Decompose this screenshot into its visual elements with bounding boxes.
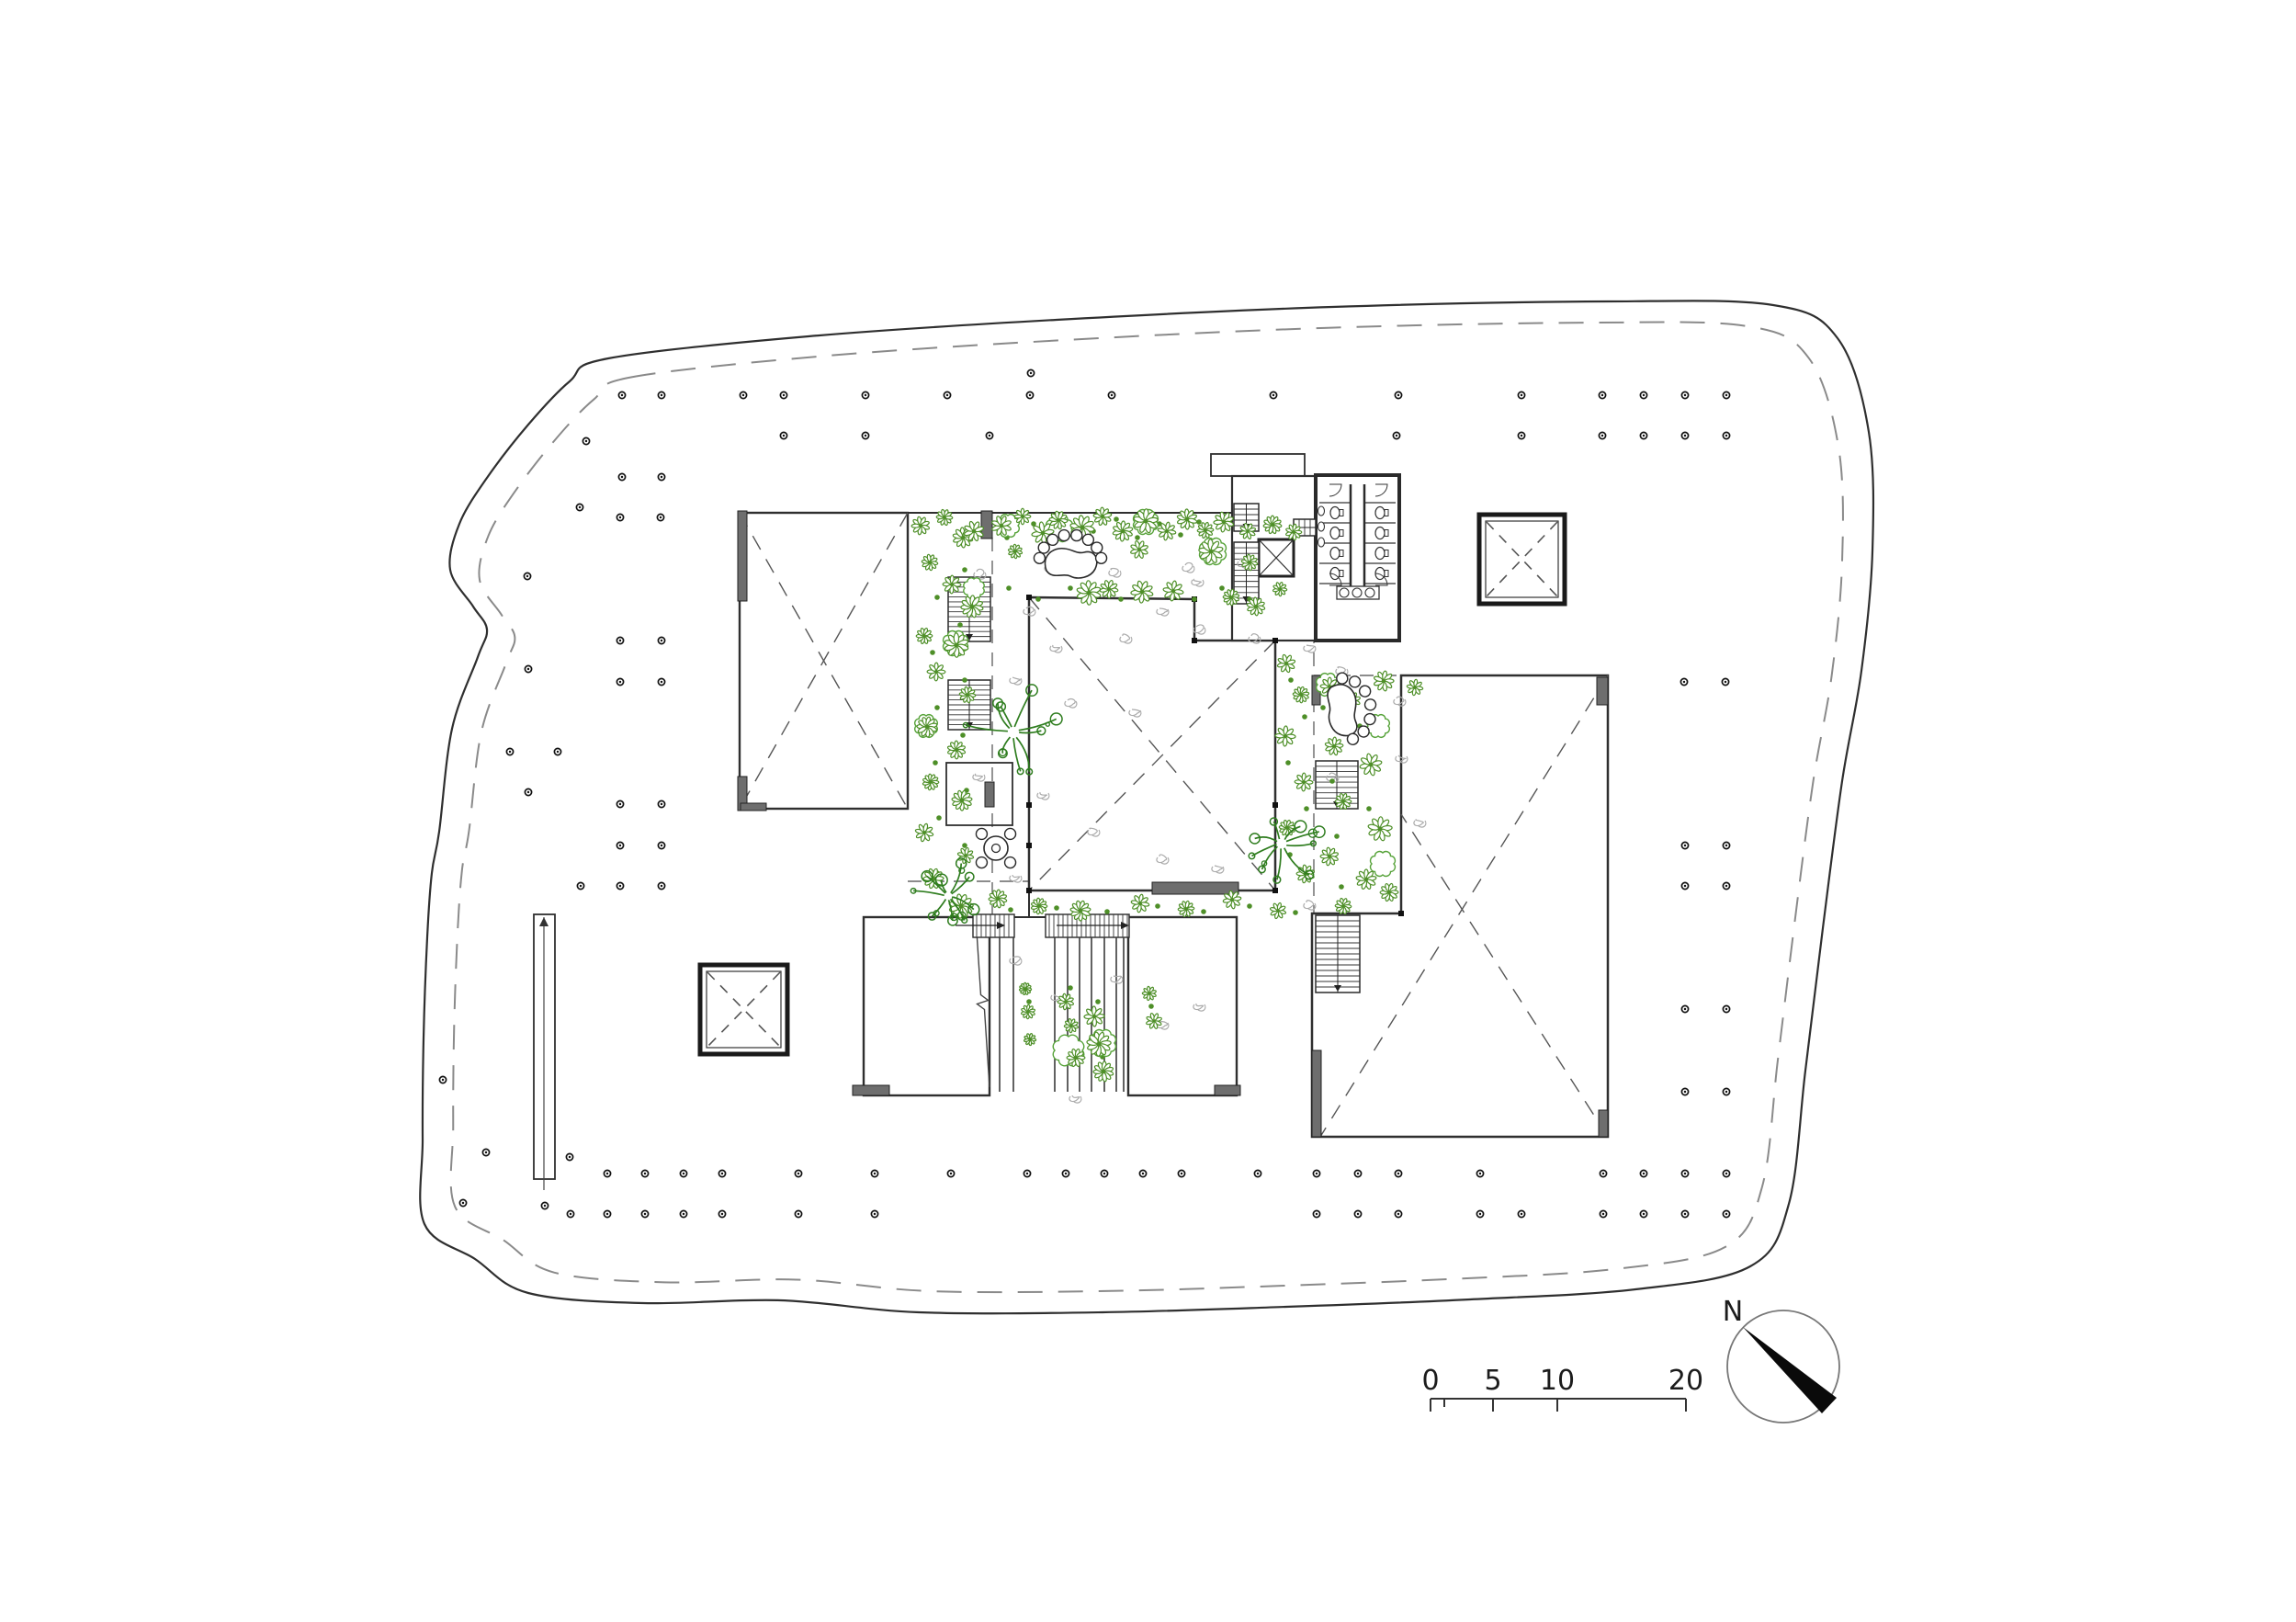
column-dot bbox=[604, 1170, 610, 1176]
column-dot-center bbox=[644, 1213, 646, 1215]
column-dot-center bbox=[865, 435, 866, 437]
leaf-scribble bbox=[1182, 562, 1194, 573]
column-dot bbox=[577, 882, 583, 889]
flower-petal bbox=[1024, 982, 1026, 988]
column-dot-center bbox=[557, 751, 559, 753]
column-dot-center bbox=[661, 640, 662, 641]
column-dot-center bbox=[865, 394, 866, 396]
column-dot-center bbox=[721, 1173, 723, 1174]
flower-petal bbox=[1120, 532, 1125, 541]
corner-marker bbox=[1026, 843, 1032, 848]
column-dot bbox=[1723, 1210, 1729, 1217]
column-dot-center bbox=[485, 1151, 487, 1153]
plant-dot bbox=[930, 650, 935, 655]
north-label: N bbox=[1723, 1296, 1743, 1328]
column-dot bbox=[1640, 1170, 1646, 1176]
column-dot bbox=[616, 800, 623, 807]
leaf-scribble bbox=[1109, 569, 1121, 578]
column-dot-center bbox=[621, 476, 623, 478]
column-dot bbox=[1599, 391, 1605, 398]
leaf-scribble bbox=[1304, 645, 1316, 652]
wc-fixture bbox=[1330, 527, 1340, 539]
column-dot-center bbox=[660, 516, 662, 518]
wc-fixture bbox=[1375, 527, 1385, 539]
column-dot-center bbox=[989, 435, 990, 437]
column-dot bbox=[1723, 432, 1729, 438]
plant-dot bbox=[1178, 532, 1183, 538]
urinal-fixture bbox=[1318, 538, 1325, 547]
flower-plant bbox=[1099, 578, 1120, 599]
column-dot-center bbox=[462, 1202, 464, 1204]
column-dot-center bbox=[1029, 394, 1031, 396]
column-dot-center bbox=[783, 435, 785, 437]
column-dot-center bbox=[570, 1213, 571, 1215]
flower-petal bbox=[945, 516, 953, 519]
plant-dot bbox=[1366, 806, 1372, 811]
column-dot bbox=[680, 1170, 686, 1176]
column-dot bbox=[1518, 1210, 1524, 1217]
column-dot-center bbox=[619, 885, 621, 887]
flower-plant bbox=[1377, 880, 1400, 903]
column-dot bbox=[658, 842, 664, 848]
column-dot-center bbox=[874, 1173, 876, 1174]
column-dot bbox=[1254, 1170, 1261, 1176]
flower-plant bbox=[1022, 1031, 1038, 1048]
leaf-scribble bbox=[973, 774, 985, 781]
column-dot bbox=[604, 1210, 610, 1217]
plant-dot bbox=[1114, 516, 1119, 522]
column-dot-center bbox=[1521, 394, 1522, 396]
column-dot bbox=[1313, 1170, 1319, 1176]
column-dot-center bbox=[1257, 1173, 1259, 1174]
scale-label-10: 10 bbox=[1540, 1365, 1575, 1397]
plant-dot bbox=[1068, 985, 1073, 991]
column-dot bbox=[566, 1153, 572, 1160]
column-dot-center bbox=[1316, 1213, 1318, 1215]
chair bbox=[1058, 530, 1069, 541]
column-dot-center bbox=[1272, 394, 1274, 396]
wall-segment bbox=[1152, 882, 1238, 894]
column-dot bbox=[641, 1170, 648, 1176]
column-dot-center bbox=[619, 845, 621, 846]
column-dot bbox=[576, 504, 582, 510]
column-dot-center bbox=[874, 1213, 876, 1215]
plant-dot bbox=[933, 760, 938, 766]
column-dot bbox=[1026, 391, 1033, 398]
wc-cistern bbox=[1340, 530, 1343, 537]
column-dot bbox=[871, 1170, 877, 1176]
plant-dot bbox=[1008, 907, 1013, 913]
column-dot-center bbox=[1521, 1213, 1522, 1215]
plant-dot bbox=[1320, 705, 1326, 710]
leaf-scribble bbox=[1010, 875, 1022, 882]
sink-basin bbox=[1340, 588, 1349, 597]
tree-branch bbox=[1286, 844, 1313, 845]
column-dot-center bbox=[1357, 1213, 1359, 1215]
corner-marker bbox=[1026, 888, 1032, 893]
column-dot-center bbox=[1725, 1213, 1727, 1215]
column-dot-center bbox=[1684, 1008, 1686, 1010]
column-dot bbox=[1270, 391, 1276, 398]
column-dot bbox=[506, 748, 513, 754]
column-dot bbox=[1101, 1170, 1107, 1176]
column-dot-center bbox=[580, 885, 582, 887]
flower-petal bbox=[911, 524, 920, 527]
flower-plant bbox=[1091, 504, 1115, 528]
column-dot bbox=[524, 573, 530, 579]
column-dot bbox=[616, 842, 623, 848]
column-dot bbox=[680, 1210, 686, 1217]
column-dot-center bbox=[606, 1173, 608, 1174]
wall-segment bbox=[1597, 677, 1608, 705]
column-dot bbox=[1108, 391, 1114, 398]
chair bbox=[1349, 675, 1362, 688]
sink-basin bbox=[1365, 588, 1374, 597]
column-dot bbox=[718, 1170, 725, 1176]
column-dot-center bbox=[661, 845, 662, 846]
corner-marker bbox=[1398, 911, 1404, 916]
column-dot-center bbox=[1142, 1173, 1144, 1174]
column-dot bbox=[1518, 391, 1524, 398]
flower-plant bbox=[1127, 890, 1153, 916]
wall-segment bbox=[853, 1085, 889, 1095]
column-dot-center bbox=[683, 1213, 684, 1215]
plant-dot bbox=[1334, 834, 1340, 839]
column-dot-center bbox=[946, 394, 948, 396]
column-dot-center bbox=[1397, 394, 1399, 396]
column-dot bbox=[871, 1210, 877, 1217]
plant-dot bbox=[962, 567, 967, 573]
column-dot-center bbox=[1601, 394, 1603, 396]
column-dot bbox=[554, 748, 560, 754]
column-dot-center bbox=[1725, 435, 1727, 437]
corner-marker bbox=[1272, 802, 1278, 808]
wc-fixture bbox=[1375, 507, 1385, 519]
plant-dot bbox=[1192, 596, 1197, 602]
column-dot bbox=[780, 432, 786, 438]
chair bbox=[1364, 698, 1377, 711]
column-dot bbox=[986, 432, 992, 438]
column-dot bbox=[641, 1210, 648, 1217]
column-dot-center bbox=[606, 1213, 608, 1215]
wc-cistern bbox=[1340, 571, 1343, 577]
flower-petal bbox=[1283, 737, 1287, 746]
column-dot-center bbox=[585, 440, 587, 442]
urinal-fixture bbox=[1318, 506, 1325, 516]
column-dot bbox=[1681, 1210, 1688, 1217]
column-dot bbox=[1723, 391, 1729, 398]
kidney-table bbox=[1324, 682, 1362, 738]
column-dot bbox=[1681, 1170, 1688, 1176]
column-dot bbox=[658, 882, 664, 889]
column-dot bbox=[616, 882, 623, 889]
flower-plant bbox=[1290, 684, 1312, 706]
chair bbox=[1096, 552, 1107, 563]
plant-dot bbox=[1247, 903, 1252, 909]
column-dot-center bbox=[619, 640, 621, 641]
plant-dot bbox=[1035, 596, 1041, 602]
column-dot bbox=[658, 391, 664, 398]
table-center bbox=[992, 845, 1001, 853]
column-dot-center bbox=[1111, 394, 1113, 396]
flower-plant bbox=[1017, 981, 1034, 997]
column-dot bbox=[1599, 432, 1605, 438]
column-dot bbox=[1723, 882, 1729, 889]
tree bbox=[910, 858, 978, 925]
column-dot-center bbox=[1725, 681, 1726, 683]
column-dot bbox=[541, 1202, 548, 1208]
flower-plant bbox=[933, 506, 956, 529]
column-dot bbox=[658, 637, 664, 643]
chair bbox=[976, 828, 987, 839]
column-dot bbox=[795, 1170, 801, 1176]
column-dot bbox=[1062, 1170, 1069, 1176]
column-dot bbox=[482, 1149, 489, 1155]
flower-plant bbox=[944, 738, 967, 761]
column-dot-center bbox=[527, 791, 529, 793]
column-dot bbox=[1681, 391, 1688, 398]
column-dot bbox=[1723, 1170, 1729, 1176]
toilet-block bbox=[1316, 475, 1399, 641]
wall-segment bbox=[1599, 1110, 1608, 1137]
stair bbox=[1316, 915, 1360, 992]
column-dot-center bbox=[1643, 435, 1645, 437]
column-dot-center bbox=[797, 1213, 799, 1215]
chair bbox=[1071, 530, 1082, 541]
corner-marker bbox=[1192, 638, 1197, 643]
column-dot bbox=[780, 391, 786, 398]
column-dot bbox=[1681, 1005, 1688, 1012]
column-dot bbox=[1024, 1170, 1030, 1176]
column-dot bbox=[618, 391, 625, 398]
flower-plant bbox=[1021, 1004, 1035, 1019]
column-dot bbox=[1681, 882, 1688, 889]
leaf-scribble bbox=[1069, 1095, 1081, 1103]
column-dot bbox=[439, 1076, 446, 1083]
column-dot bbox=[1680, 678, 1687, 685]
column-dot bbox=[1395, 1210, 1401, 1217]
flower-plant bbox=[1090, 1058, 1116, 1084]
column-dot bbox=[525, 788, 531, 795]
column-dot-center bbox=[526, 575, 528, 577]
column-dot bbox=[947, 1170, 954, 1176]
column-dot-center bbox=[783, 394, 785, 396]
flower-plant bbox=[1127, 538, 1151, 561]
column-dot bbox=[1476, 1170, 1483, 1176]
plant-dot bbox=[1304, 806, 1309, 811]
column-dot bbox=[567, 1210, 573, 1217]
flower-petal bbox=[1214, 520, 1223, 525]
flower-plant bbox=[1008, 544, 1024, 560]
column-dot bbox=[616, 637, 623, 643]
plant-dot bbox=[1339, 884, 1344, 890]
chair bbox=[1091, 542, 1103, 553]
column-dot bbox=[1354, 1170, 1361, 1176]
plant-dot bbox=[1026, 999, 1032, 1004]
column-dot bbox=[718, 1210, 725, 1217]
plant-dot bbox=[1148, 1004, 1154, 1009]
column-dot-center bbox=[1103, 1173, 1105, 1174]
flower-plant bbox=[908, 513, 933, 539]
column-dot-center bbox=[1725, 1173, 1727, 1174]
column-dot-center bbox=[950, 1173, 952, 1174]
plant-dot bbox=[1054, 905, 1059, 911]
flower-plant bbox=[911, 820, 936, 845]
column-dot-center bbox=[661, 885, 662, 887]
column-dot-center bbox=[1643, 1213, 1645, 1215]
tree-branch bbox=[913, 890, 944, 895]
urinal-fixture bbox=[1318, 522, 1325, 531]
plant-dot bbox=[1135, 535, 1140, 540]
column-dot-center bbox=[1684, 845, 1686, 846]
wc-cistern bbox=[1385, 550, 1388, 557]
roof-canopy bbox=[1211, 454, 1305, 476]
column-dot-center bbox=[1684, 1091, 1686, 1093]
column-dot-center bbox=[1357, 1173, 1359, 1174]
column-dot-center bbox=[442, 1079, 444, 1081]
wc-fixture bbox=[1375, 548, 1385, 560]
flower-plant bbox=[948, 787, 977, 815]
column-dot-center bbox=[619, 803, 621, 805]
flower-plant bbox=[1268, 901, 1288, 921]
column-dot bbox=[1395, 391, 1401, 398]
leaf-scribble bbox=[1010, 677, 1022, 685]
plant-dot bbox=[1155, 903, 1160, 909]
flower-plant bbox=[927, 663, 945, 681]
column-dot bbox=[658, 800, 664, 807]
column-dot bbox=[1640, 432, 1646, 438]
column-dot bbox=[525, 665, 531, 672]
scale-label-0: 0 bbox=[1421, 1365, 1439, 1397]
plant-dot bbox=[1201, 909, 1206, 914]
tree-branch bbox=[1277, 848, 1281, 879]
column-dot-center bbox=[1602, 1213, 1604, 1215]
column-dot bbox=[459, 1199, 466, 1206]
plant-dot bbox=[1285, 760, 1291, 766]
column-dot-center bbox=[1643, 394, 1645, 396]
column-dot bbox=[1600, 1170, 1606, 1176]
column-dot bbox=[618, 473, 625, 480]
flower-plant bbox=[1321, 733, 1347, 759]
plant-dot bbox=[1293, 910, 1298, 915]
wc-fixture bbox=[1330, 507, 1340, 519]
corner-marker bbox=[1272, 638, 1278, 643]
column-dot-center bbox=[1601, 435, 1603, 437]
flower-plant bbox=[922, 773, 941, 792]
column-dot bbox=[1027, 369, 1034, 376]
column-dot-center bbox=[742, 394, 744, 396]
chair bbox=[1034, 552, 1045, 563]
column-dot-center bbox=[1684, 885, 1686, 887]
chair bbox=[1082, 534, 1093, 545]
column-dot bbox=[1640, 391, 1646, 398]
flower-plant bbox=[1370, 667, 1397, 695]
column-dot-center bbox=[1026, 1173, 1028, 1174]
column-dot bbox=[740, 391, 746, 398]
column-dot-center bbox=[509, 751, 511, 753]
column-dot bbox=[616, 678, 623, 685]
column-dot-center bbox=[1684, 1213, 1686, 1215]
flower-petal bbox=[1253, 597, 1258, 606]
column-dot bbox=[1178, 1170, 1184, 1176]
column-dot-center bbox=[619, 681, 621, 683]
corner-marker bbox=[1026, 802, 1032, 808]
floor-plan-canvas: 0 5 10 20 N bbox=[0, 0, 2296, 1622]
flower-plant bbox=[943, 575, 961, 594]
plant-dot bbox=[1118, 596, 1124, 602]
column-dot-center bbox=[721, 1213, 723, 1215]
column-dot bbox=[1681, 842, 1688, 848]
plant-dot bbox=[936, 815, 942, 821]
flower-petal bbox=[1247, 554, 1250, 561]
flower-plant bbox=[1317, 844, 1342, 869]
column-dot-center bbox=[1479, 1213, 1481, 1215]
flower-plant bbox=[1274, 652, 1299, 676]
chair bbox=[1005, 857, 1016, 868]
wall-segment bbox=[741, 803, 766, 811]
wall-segment bbox=[985, 782, 994, 807]
flower-plant bbox=[1084, 1006, 1105, 1027]
column-dot-center bbox=[621, 394, 623, 396]
flower-plant bbox=[916, 628, 933, 644]
column-dot-center bbox=[644, 1173, 646, 1174]
drawing-page: 0 5 10 20 N bbox=[0, 0, 2296, 1622]
column-dot-center bbox=[527, 668, 529, 670]
column-dot-center bbox=[619, 516, 621, 518]
column-dot-center bbox=[1521, 435, 1522, 437]
plant-dot bbox=[1104, 909, 1110, 914]
chair bbox=[1359, 685, 1372, 698]
column-dot-center bbox=[1725, 1008, 1727, 1010]
plant-dot bbox=[960, 732, 966, 738]
wall-segment bbox=[1312, 1050, 1321, 1137]
scale-label-5: 5 bbox=[1484, 1365, 1501, 1397]
plant-dot bbox=[957, 622, 963, 628]
plant-dot bbox=[1219, 585, 1225, 591]
column-dot bbox=[657, 514, 663, 520]
wall-segment bbox=[1215, 1085, 1240, 1095]
plant-dot bbox=[1329, 778, 1335, 784]
column-dot-center bbox=[661, 394, 662, 396]
column-dot bbox=[582, 437, 589, 444]
column-dot-center bbox=[661, 476, 662, 478]
column-dot-center bbox=[544, 1205, 546, 1207]
flower-plant bbox=[1363, 811, 1397, 845]
annotation-layer: 0 5 10 20 N bbox=[1421, 1296, 1839, 1423]
flower-petal bbox=[1332, 737, 1337, 745]
flower-plant bbox=[1108, 516, 1137, 545]
column-dot-center bbox=[1602, 1173, 1604, 1174]
roof-room bbox=[864, 917, 990, 1095]
column-dot bbox=[1722, 678, 1728, 685]
column-dot-center bbox=[1684, 435, 1686, 437]
wc-cistern bbox=[1385, 571, 1388, 577]
column-dot-center bbox=[1643, 1173, 1645, 1174]
column-dot-center bbox=[1396, 435, 1397, 437]
column-dot-center bbox=[1397, 1173, 1399, 1174]
flower-petal bbox=[1320, 855, 1329, 858]
flower-plant bbox=[986, 887, 1010, 911]
flower-plant bbox=[1062, 1016, 1080, 1034]
flower-petal bbox=[1014, 515, 1022, 518]
plant-dot bbox=[962, 843, 967, 848]
corner-marker bbox=[1272, 888, 1278, 893]
flower-plant bbox=[1295, 773, 1313, 791]
roof-room bbox=[1128, 917, 1237, 1095]
leaf-scribble bbox=[1192, 579, 1204, 586]
compass-needle bbox=[1743, 1327, 1837, 1413]
bush bbox=[1371, 852, 1396, 877]
